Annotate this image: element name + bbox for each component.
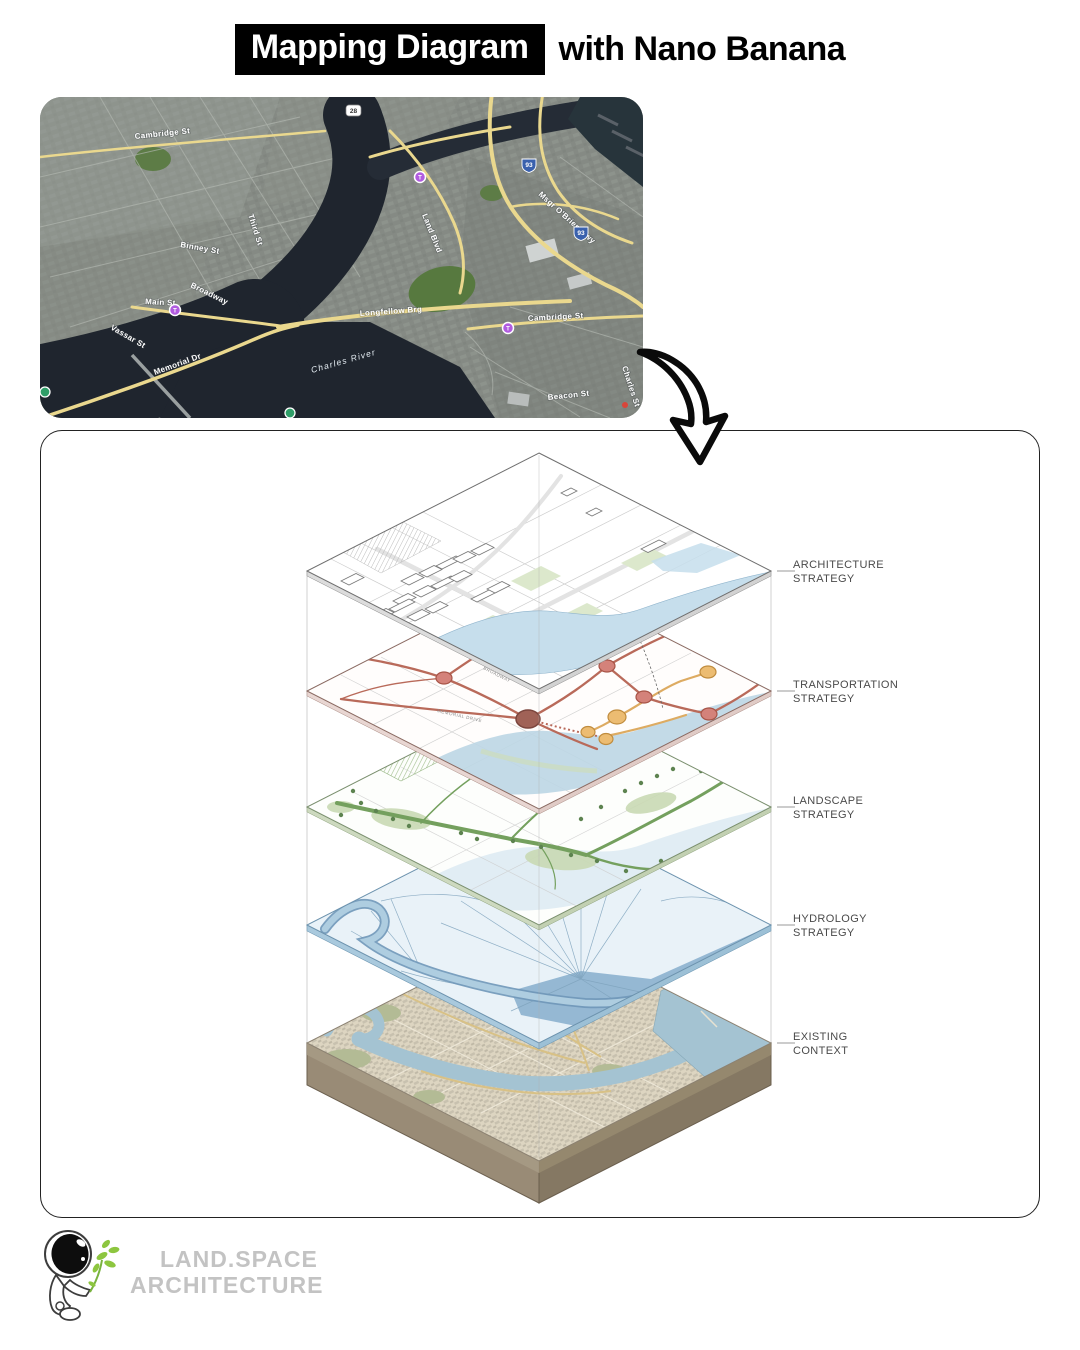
label-line: CONTEXT xyxy=(793,1044,953,1058)
label-line: STRATEGY xyxy=(793,926,953,940)
label-line: LANDSCAPE xyxy=(793,794,953,808)
page-title: Mapping Diagram with Nano Banana xyxy=(0,24,1080,75)
label-line: HYDROLOGY xyxy=(793,912,953,926)
diagram-panel: BROADWAY MEMORIAL DRIVE xyxy=(40,430,1040,1218)
label-architecture-strategy: ARCHITECTURE STRATEGY xyxy=(793,558,953,586)
transit-marker-purple: T xyxy=(415,172,426,183)
label-line: TRANSPORTATION xyxy=(793,678,953,692)
label-existing-context: EXISTING CONTEXT xyxy=(793,1030,953,1058)
label-line: EXISTING xyxy=(793,1030,953,1044)
svg-text:T: T xyxy=(173,309,177,315)
svg-text:93: 93 xyxy=(577,230,585,237)
label-line: STRATEGY xyxy=(793,572,953,586)
label-line: ARCHITECTURE xyxy=(793,558,953,572)
satellite-map: Cambridge St Third St Binney St Broadway… xyxy=(40,97,643,418)
route-28-shield: 28 xyxy=(346,105,361,116)
svg-text:28: 28 xyxy=(350,108,358,115)
title-subtitle: with Nano Banana xyxy=(559,30,846,69)
poster: Mapping Diagram with Nano Banana xyxy=(0,0,1080,1350)
svg-text:T: T xyxy=(506,327,510,333)
label-line: STRATEGY xyxy=(793,808,953,822)
label-landscape-strategy: LANDSCAPE STRATEGY xyxy=(793,794,953,822)
satellite-map-graphic: Cambridge St Third St Binney St Broadway… xyxy=(40,97,643,418)
label-hydrology-strategy: HYDROLOGY STRATEGY xyxy=(793,912,953,940)
title-highlight: Mapping Diagram xyxy=(235,24,545,75)
brand-logo: LAND.SPACE ARCHITECTURE xyxy=(40,1228,323,1324)
brand-line-1: LAND.SPACE xyxy=(160,1246,323,1272)
brand-name: LAND.SPACE ARCHITECTURE xyxy=(130,1228,323,1324)
plant-leaves xyxy=(88,1238,120,1287)
brand-line-2: ARCHITECTURE xyxy=(130,1272,323,1298)
transit-marker-green xyxy=(40,387,50,397)
down-arrow-icon xyxy=(628,344,748,474)
interstate-93-shield: 93 xyxy=(522,159,536,173)
astronaut-mascot-icon xyxy=(40,1228,122,1324)
svg-text:93: 93 xyxy=(525,162,533,169)
transit-marker-green xyxy=(285,408,295,418)
svg-text:T: T xyxy=(418,176,422,182)
transit-marker-purple: T xyxy=(170,305,181,316)
interstate-93-shield: 93 xyxy=(574,227,588,241)
label-transportation-strategy: TRANSPORTATION STRATEGY xyxy=(793,678,953,706)
layer-stack: BROADWAY MEMORIAL DRIVE xyxy=(41,431,1038,1216)
transit-marker-purple: T xyxy=(503,323,514,334)
label-line: STRATEGY xyxy=(793,692,953,706)
